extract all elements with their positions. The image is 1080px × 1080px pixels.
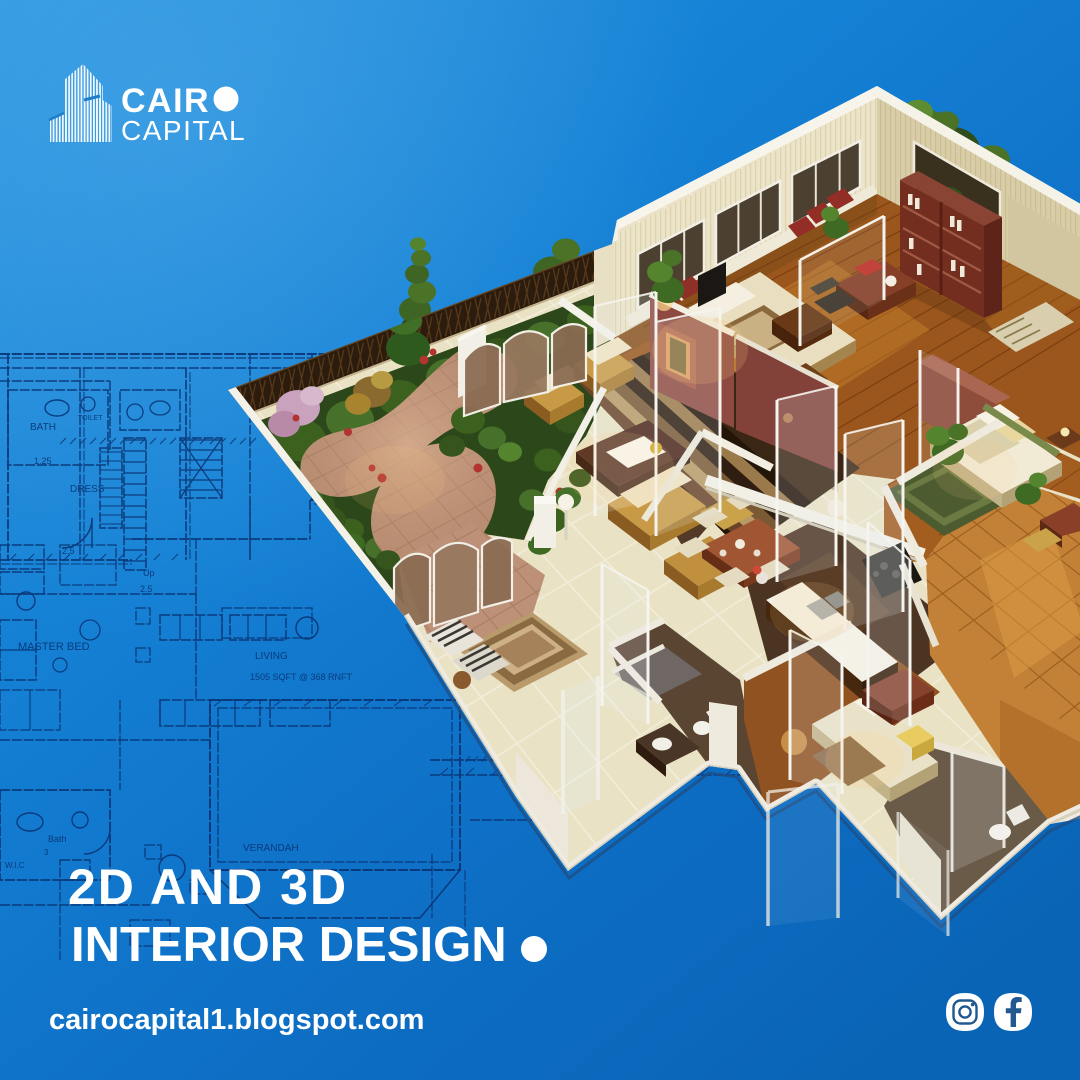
svg-text:2.5: 2.5 (140, 584, 153, 594)
svg-text:cairocapital1.blogspot.com: cairocapital1.blogspot.com (49, 1004, 424, 1036)
svg-text:Bath: Bath (48, 834, 67, 844)
svg-text:TOILET: TOILET (78, 415, 103, 422)
svg-text:MASTER BED: MASTER BED (18, 641, 90, 653)
svg-text:VERANDAH: VERANDAH (243, 843, 299, 854)
svg-text:BATH: BATH (30, 422, 56, 433)
svg-text:3: 3 (44, 848, 49, 857)
svg-text:Up: Up (143, 568, 155, 578)
svg-text:1505 SQFT @ 368 RNFT: 1505 SQFT @ 368 RNFT (250, 672, 353, 682)
svg-text:CAPITAL: CAPITAL (121, 115, 246, 146)
svg-text:INTERIOR DESIGN: INTERIOR DESIGN (71, 918, 507, 972)
svg-text:LIVING: LIVING (255, 651, 288, 662)
svg-text:W.I.C: W.I.C (5, 861, 25, 870)
svg-text:2D AND 3D: 2D AND 3D (68, 859, 348, 915)
svg-text:1.25: 1.25 (34, 456, 52, 466)
